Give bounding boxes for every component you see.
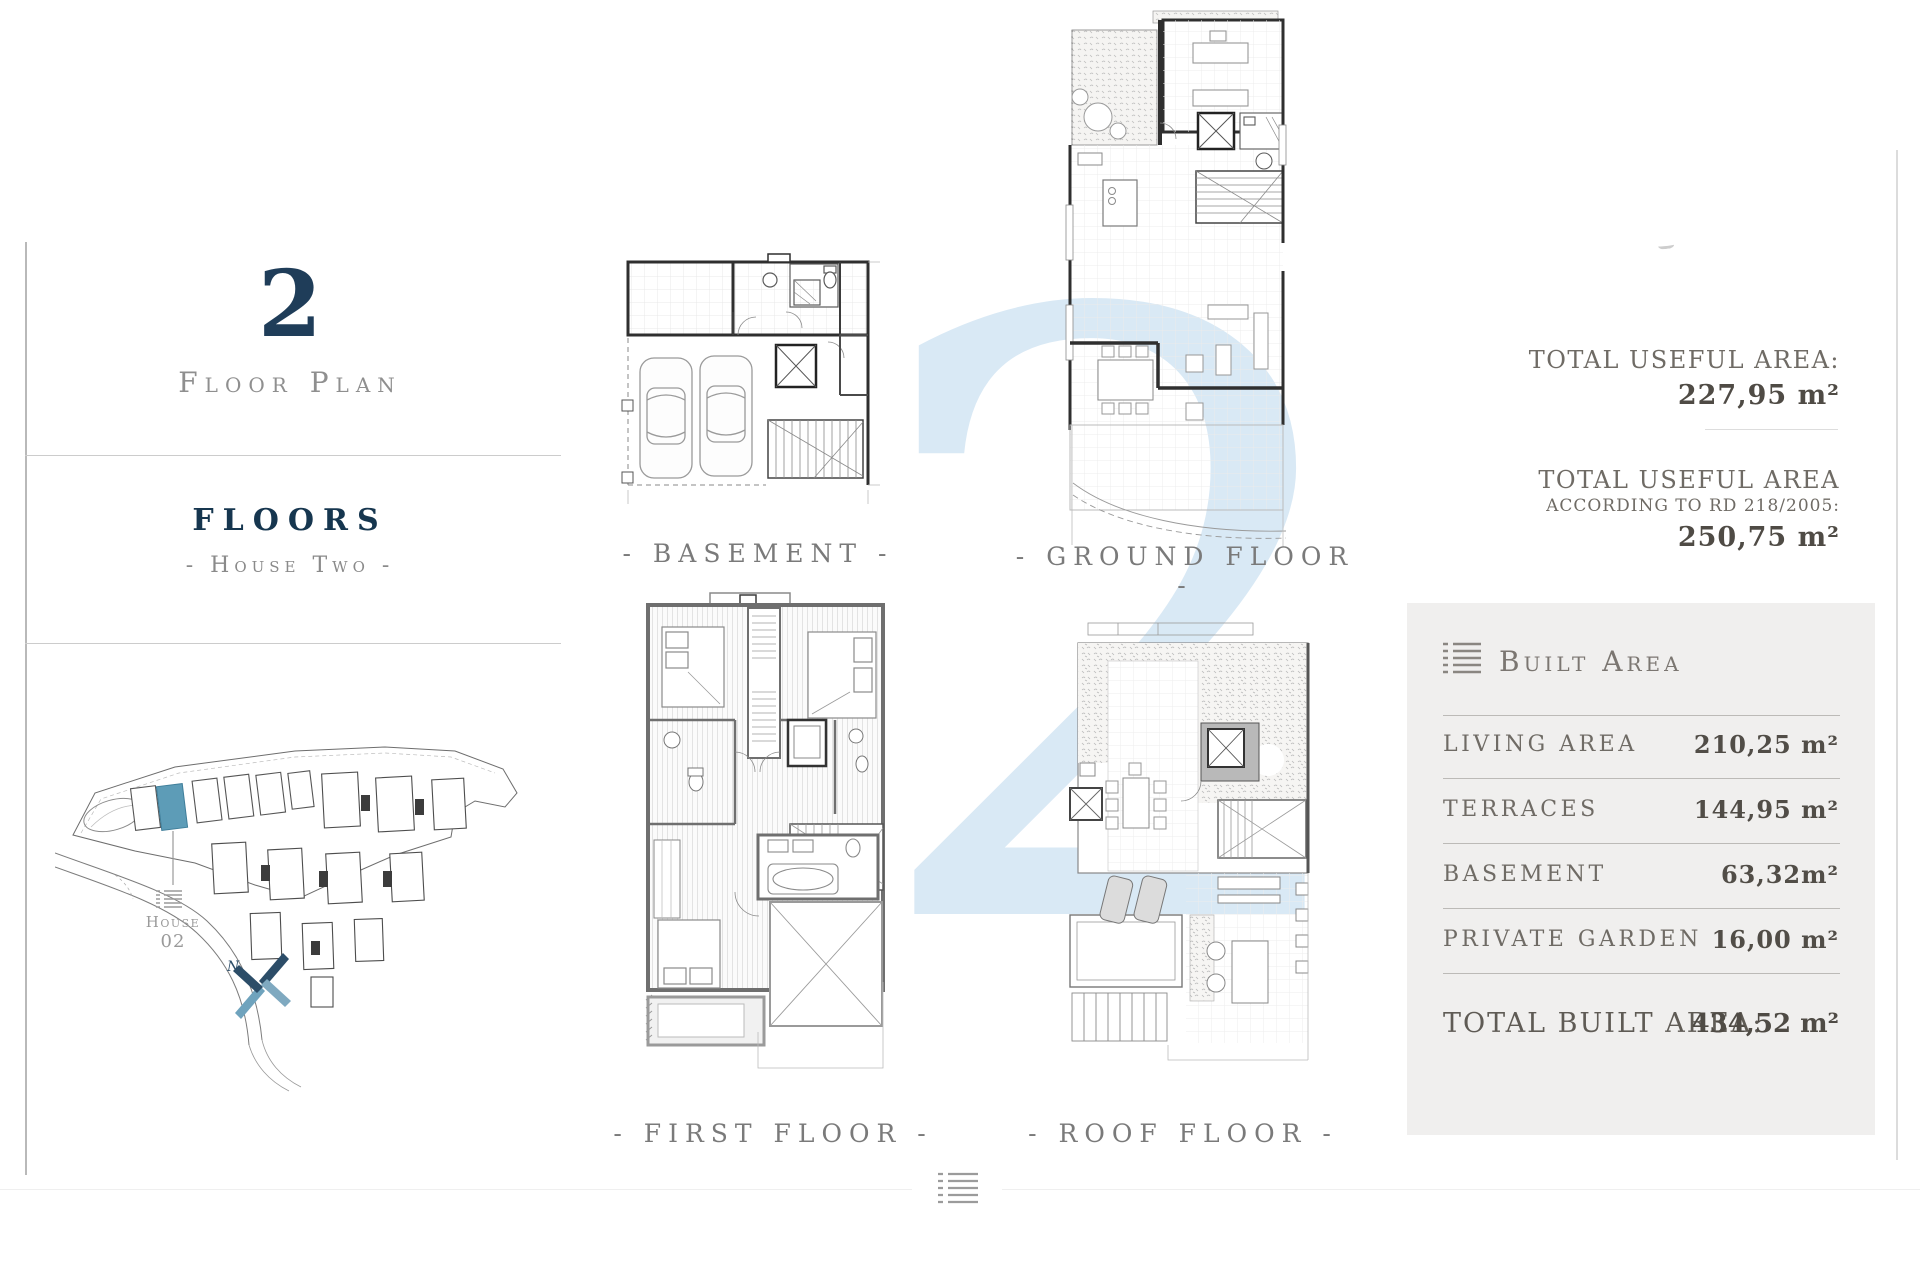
- section-title: FLOORS: [25, 503, 555, 538]
- panel-divider: [1443, 715, 1840, 716]
- row-basement-label: BASEMENT: [1443, 862, 1607, 887]
- sheet-caption: Floor Plan: [25, 366, 555, 399]
- ground-floor-plan-drawing: [1058, 5, 1308, 550]
- first-floor-label: - FIRST FLOOR -: [603, 1119, 943, 1148]
- panel-divider: [1443, 973, 1840, 974]
- footer-rule-right: [1002, 1189, 1920, 1190]
- total-built-area-value: 434,52 m²: [1692, 1009, 1839, 1039]
- sheet-number: 2: [25, 258, 555, 350]
- row-living-area-label: LIVING AREA: [1443, 732, 1638, 757]
- total-useful-area-rd-sublabel: ACCORDING TO RD 218/2005:: [1546, 496, 1840, 516]
- compass-icon: N: [226, 953, 291, 1019]
- built-area-list-icon: [1443, 641, 1481, 675]
- total-useful-area-rd-label: TOTAL USEFUL AREA: [1538, 466, 1840, 494]
- signature-mark: [1658, 239, 1675, 250]
- first-floor-plan-drawing: [640, 592, 895, 1072]
- built-area-title: Built Area: [1499, 645, 1683, 678]
- panel-divider: [1443, 778, 1840, 779]
- sidebar-divider-top: [25, 455, 561, 456]
- row-private-garden-label: PRIVATE GARDEN: [1443, 927, 1702, 952]
- section-subtitle: - House Two -: [25, 553, 555, 578]
- basement-plan-drawing: [618, 250, 883, 515]
- row-basement-value: 63,32m²: [1721, 860, 1839, 889]
- row-living-area-value: 210,25 m²: [1694, 730, 1839, 759]
- footer-list-icon: [938, 1170, 978, 1206]
- site-house-label: House: [146, 913, 200, 931]
- sidebar-divider-bottom: [25, 643, 561, 644]
- basement-label: - BASEMENT -: [588, 539, 928, 568]
- floorplan-sheet: 2 2 Floor Plan FLOORS - House Two -: [0, 0, 1920, 1280]
- footer-rule-left: [0, 1189, 912, 1190]
- site-house-number: 02: [161, 931, 186, 952]
- row-private-garden-value: 16,00 m²: [1712, 925, 1839, 954]
- panel-divider: [1443, 843, 1840, 844]
- site-plan-drawing: House 02 N: [55, 735, 535, 1095]
- ground-floor-label: - GROUND FLOOR -: [1015, 542, 1355, 600]
- total-useful-area-label: TOTAL USEFUL AREA:: [1529, 346, 1840, 374]
- roof-floor-label: - ROOF FLOOR -: [1013, 1119, 1353, 1148]
- row-terraces-label: TERRACES: [1443, 797, 1599, 822]
- useful-area-divider: [1705, 429, 1838, 430]
- svg-text:N: N: [226, 959, 240, 975]
- row-terraces-value: 144,95 m²: [1694, 795, 1839, 824]
- site-list-icon: [156, 891, 182, 907]
- right-edge-rule: [1896, 150, 1898, 1160]
- roof-floor-plan-drawing: [1068, 615, 1330, 1075]
- panel-divider: [1443, 908, 1840, 909]
- total-useful-area-rd-value: 250,75 m²: [1678, 522, 1840, 553]
- total-useful-area-value: 227,95 m²: [1678, 380, 1840, 411]
- built-area-panel: Built Area LIVING AREA 210,25 m² TERRACE…: [1407, 603, 1875, 1135]
- site-highlighted-house: [156, 784, 187, 831]
